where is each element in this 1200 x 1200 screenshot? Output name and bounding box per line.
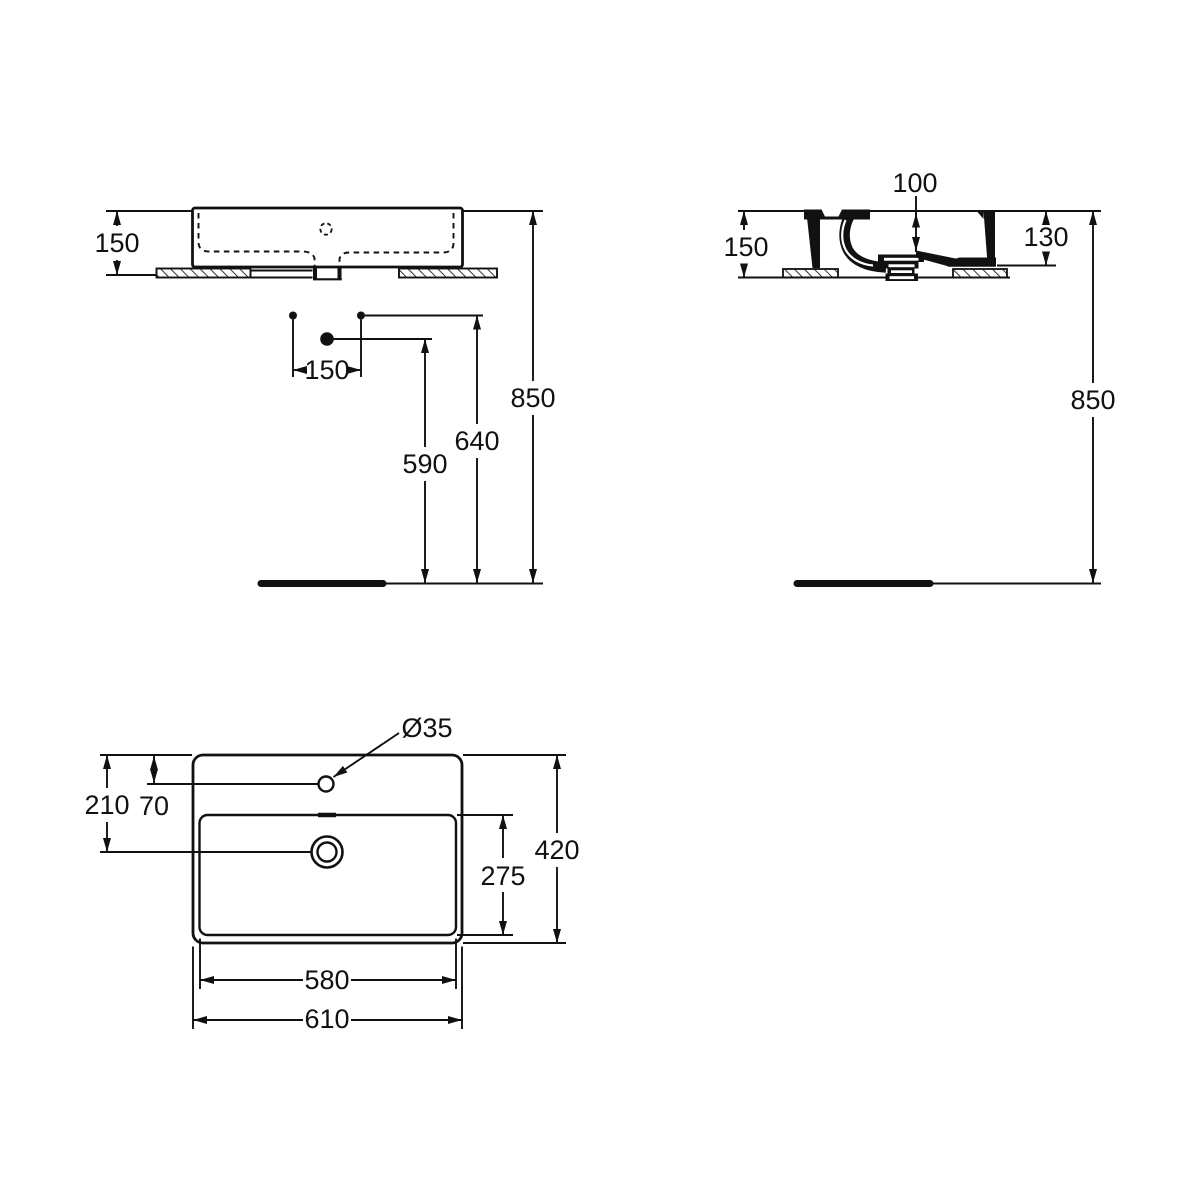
bracket-hatch-side-right: [953, 269, 1007, 278]
dim-label-overall-width: 610: [304, 1004, 349, 1034]
dim-label-drain-height: 590: [402, 449, 447, 479]
dim-label-tap-hole-spacing: 150: [304, 355, 349, 385]
bracket-hatch-side-left: [783, 269, 838, 278]
dim-label-front-height: 150: [94, 228, 139, 258]
bowl-hidden-edge-right: [340, 213, 454, 266]
bowl-plan: [200, 815, 457, 935]
fixing-hole-right-dot: [357, 312, 365, 320]
dim-label-edge-to-drain: 210: [84, 790, 129, 820]
tap-hole-plan: [319, 777, 334, 792]
basin-body-front: [193, 208, 463, 267]
front-elevation-view: 150 150 590 640 850: [94, 208, 555, 584]
dim-label-side-height: 150: [723, 232, 768, 262]
drain-outlet-dot: [320, 332, 334, 346]
wall-bracket-front: [157, 268, 498, 279]
drain-outer-plan: [312, 837, 343, 868]
side-section-view: 100 150 130 850: [723, 168, 1115, 584]
dim-label-tap-hole-diameter: Ø35: [401, 713, 452, 743]
dim-label-bowl-depth: 100: [892, 168, 937, 198]
drain-inner-plan: [318, 843, 337, 862]
fixing-hole-markers: [289, 312, 365, 346]
bracket-hatch-left: [157, 269, 251, 278]
plan-view: Ø35 210 70 420 275 580: [84, 713, 579, 1034]
dimensions-plan: Ø35 210 70 420 275 580: [84, 713, 579, 1034]
drawing-sheet: 150 150 590 640 850: [0, 0, 1200, 1200]
tap-hole-hidden-front: [320, 223, 331, 234]
front-wall-section: [984, 211, 996, 263]
dim-label-side-rim-height: 850: [1070, 385, 1115, 415]
dim-label-edge-to-tap-hole: 70: [139, 791, 169, 821]
dim-label-hole-height: 640: [454, 426, 499, 456]
bowl-hidden-edge-left: [199, 213, 315, 266]
technical-drawing-canvas: 150 150 590 640 850: [0, 0, 1200, 1200]
bracket-hatch-right: [399, 269, 497, 278]
dimensions-side: 100 150 130 850: [723, 168, 1115, 583]
dim-label-apron-height: 130: [1023, 222, 1068, 252]
rear-wall-section: [807, 213, 821, 268]
dim-label-bowl-width: 580: [304, 965, 349, 995]
basin-outline-front: [193, 208, 463, 267]
dim-label-overall-depth: 420: [534, 835, 579, 865]
dim-label-bowl-depth-plan: 275: [480, 861, 525, 891]
dim-label-front-rim-height: 850: [510, 383, 555, 413]
fixing-hole-left-dot: [289, 312, 297, 320]
